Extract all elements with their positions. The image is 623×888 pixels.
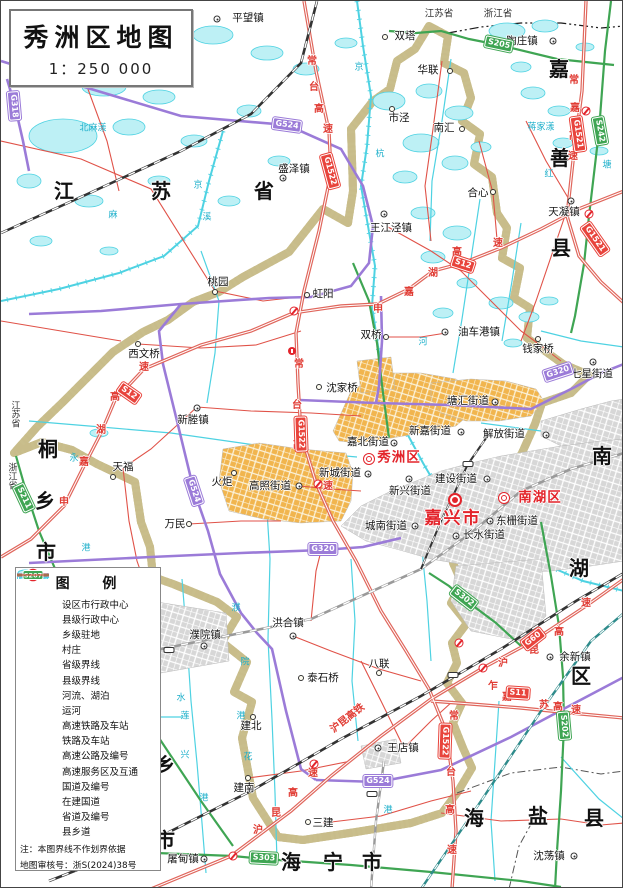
legend-note-2: 地图审核号：浙S(2024)38号 — [20, 858, 156, 871]
map-label-water: 麻 — [108, 212, 117, 221]
map-label-region: 乡 — [35, 491, 55, 511]
map-label-region: 南 — [592, 446, 612, 466]
map-label-region: 海 — [464, 808, 484, 828]
map-label-pv: 江苏省 — [10, 401, 19, 428]
map-label-rr: 湖 — [428, 269, 438, 279]
map-label-town: 七星街道 — [571, 369, 613, 380]
town-marker — [492, 399, 499, 406]
village-marker — [250, 714, 256, 720]
map-label-town: 王江泾镇 — [370, 223, 412, 234]
map-label-town: 新兴街道 — [389, 486, 431, 497]
village-marker — [135, 341, 141, 347]
map-label-rr: 常 — [294, 360, 304, 370]
town-marker — [201, 856, 208, 863]
legend-item: 县级界线 — [20, 672, 156, 687]
map-title-box: 秀洲区地图 1：250 000 — [9, 9, 193, 87]
map-label-town: 油车港镇 — [458, 327, 500, 338]
map-label-water: 兴 — [180, 752, 189, 761]
village-marker — [186, 521, 192, 527]
map-label-region: 江 — [54, 181, 74, 201]
inter-marker — [582, 107, 591, 116]
map-label-region: 市 — [36, 542, 56, 562]
map-label-town: 高照街道 — [249, 481, 291, 492]
map-label-town: 沈家桥 — [326, 383, 358, 394]
village-marker — [231, 470, 237, 476]
map-label-water: 蒋家漾 — [527, 124, 554, 133]
village-marker — [298, 675, 304, 681]
map-label-town: 新嘉街道 — [409, 426, 451, 437]
map-label-rr: 台 — [446, 768, 456, 778]
map-label-rr: 高 — [554, 628, 564, 638]
map-page: 平望镇双塔陶庄镇华联市泾南汇盛泽镇合心王江泾镇天凝镇桃园虹阳双桥油车港镇钱家桥西… — [0, 0, 623, 888]
legend-item: G60高速公路及编号 — [20, 748, 156, 763]
village-marker — [490, 189, 496, 195]
map-label-region: 市 — [362, 852, 382, 872]
town-marker — [391, 440, 398, 447]
town-marker — [214, 16, 221, 23]
legend-item-label: 县级行政中心 — [62, 612, 119, 626]
map-label-rr: 高 — [110, 393, 120, 403]
map-label-water: 花 — [243, 754, 252, 763]
map-label-rr: 台 — [309, 83, 319, 93]
legend-item-label: 国道及编号 — [62, 779, 110, 793]
legend-item-label: 县乡道 — [62, 824, 91, 838]
station-marker — [164, 647, 175, 653]
road-badge-g1522: G1522 — [294, 416, 307, 451]
town-marker — [290, 633, 297, 640]
map-label-town: 西文桥 — [128, 349, 160, 360]
map-label-water: 京 — [354, 64, 363, 73]
legend-item: G320国道及编号 — [20, 778, 156, 793]
map-label-region: 盐 — [528, 806, 548, 826]
map-label-town: 钱家桥 — [522, 344, 554, 355]
town-marker — [590, 359, 597, 366]
map-label-town: 泰石桥 — [307, 673, 339, 684]
map-label-water: 莲 — [180, 713, 189, 722]
legend-item-label: 设区市行政中心 — [62, 597, 129, 611]
legend-item-label: 铁路及车站 — [62, 733, 110, 747]
village-marker — [383, 334, 389, 340]
map-label-water: 永 — [69, 455, 78, 464]
town-marker — [571, 853, 578, 860]
map-label-rr: 速 — [447, 846, 457, 856]
inter-marker — [314, 480, 323, 489]
map-label-town: 天凝镇 — [548, 207, 580, 218]
map-label-rr: 高 — [314, 105, 324, 115]
road-badge-g318: G318 — [7, 91, 22, 121]
village-marker — [316, 384, 322, 390]
legend-item: 在建国道 — [20, 793, 156, 808]
map-label-town: 双塔 — [395, 31, 416, 42]
map-label-water: 溪 — [202, 214, 211, 223]
town-marker — [194, 405, 201, 412]
station-marker — [367, 791, 378, 797]
inter-marker — [455, 639, 464, 648]
road-badge-g524: G524 — [363, 775, 392, 787]
map-label-water: 濮 — [231, 605, 240, 614]
legend-item: 村庄 — [20, 642, 156, 657]
legend-item: 运河 — [20, 702, 156, 717]
village-marker — [304, 292, 310, 298]
town-marker — [406, 476, 413, 483]
village-marker — [382, 34, 388, 40]
map-label-rr: 申 — [59, 498, 69, 508]
town-marker — [412, 523, 419, 530]
map-label-town: 长水街道 — [463, 530, 505, 541]
village-marker — [305, 819, 311, 825]
legend-item-label: 村庄 — [62, 642, 81, 656]
map-label-town: 东栅街道 — [496, 516, 538, 527]
map-label-town: 市泾 — [389, 113, 410, 124]
map-label-town: 华联 — [418, 65, 439, 76]
map-label-town: 万民 — [165, 519, 186, 530]
inter-marker — [229, 852, 238, 861]
map-label-town: 双桥 — [361, 330, 382, 341]
map-label-town: 天福 — [113, 462, 134, 473]
map-label-region: 嘉 — [549, 59, 569, 79]
inter-marker — [290, 307, 299, 316]
town-marker — [280, 175, 287, 182]
town-marker — [442, 329, 449, 336]
map-label-rr: 常 — [449, 712, 459, 722]
road-badge-s303: S303 — [249, 851, 278, 864]
legend-item: 高速铁路及车站 — [20, 718, 156, 733]
map-label-town: 洪合镇 — [272, 618, 304, 629]
map-label-city: 嘉兴市 — [425, 511, 482, 528]
town-marker — [550, 38, 557, 45]
map-label-town: 濮院镇 — [189, 630, 221, 641]
map-label-region: 县 — [551, 238, 571, 258]
legend-item: 河流、湖泊 — [20, 687, 156, 702]
service-marker — [288, 347, 296, 355]
map-label-town: 嘉北街道 — [347, 437, 389, 448]
map-label-water: 水 — [176, 695, 185, 704]
map-label-rr: 沪 — [253, 826, 263, 836]
legend-item: 县乡道 — [20, 824, 156, 839]
map-label-town: 余新镇 — [559, 652, 591, 663]
legend-item: S207省道及编号 — [20, 809, 156, 824]
legend-item-label: 河流、湖泊 — [62, 688, 110, 702]
town-marker — [458, 429, 465, 436]
village-marker — [245, 775, 251, 781]
village-marker — [459, 126, 465, 132]
legend-item-label: 省级界线 — [62, 657, 100, 671]
map-label-rr: 速 — [323, 482, 333, 492]
map-label-water: 院 — [240, 659, 249, 668]
map-label-region: 海 — [281, 852, 301, 872]
village-marker — [376, 670, 382, 676]
road-badge-s11: S11 — [506, 686, 530, 700]
village-marker — [110, 474, 116, 480]
legend-item-label: 运河 — [62, 703, 81, 717]
map-label-rr: 速 — [568, 152, 578, 162]
legend-item-label: 高速公路及编号 — [62, 748, 129, 762]
map-scale: 1：250 000 — [11, 58, 191, 79]
map-label-town: 王店镇 — [387, 743, 419, 754]
map-label-water: 港 — [199, 795, 208, 804]
map-label-town: 城南街道 — [365, 521, 407, 532]
map-label-rr: 沪 — [498, 659, 508, 669]
map-label-town: 新城街道 — [319, 468, 361, 479]
road-badge-g1522: G1522 — [438, 723, 451, 758]
legend-item: 铁路及车站 — [20, 733, 156, 748]
map-label-water: 河 — [418, 339, 427, 348]
legend-item-label: 乡级驻地 — [62, 627, 100, 641]
town-marker — [296, 483, 303, 490]
legend-rows: 设区市行政中心县级行政中心乡级驻地村庄省级界线县级界线河流、湖泊运河高速铁路及车… — [20, 596, 156, 839]
map-label-town: 建设街道 — [435, 474, 477, 485]
map-label-town: 火炬 — [212, 477, 233, 488]
map-label-town: 塘汇街道 — [447, 396, 489, 407]
town-marker — [453, 533, 460, 540]
map-label-water: 京 — [193, 182, 202, 191]
map-label-rr: 常 — [569, 76, 579, 86]
map-label-town: 桃园 — [208, 277, 229, 288]
map-label-water: 港 — [236, 713, 245, 722]
map-label-region: 宁 — [323, 852, 343, 872]
legend-item: 省级界线 — [20, 657, 156, 672]
road-badge-g320: G320 — [308, 543, 337, 555]
village-marker — [447, 68, 453, 74]
town-marker — [375, 745, 382, 752]
map-label-district: 秀洲区 — [377, 451, 421, 465]
map-label-region: 桐 — [38, 439, 58, 459]
map-label-rr: 常 — [307, 57, 317, 67]
legend-item: 县级行政中心 — [20, 611, 156, 626]
station-marker — [448, 672, 459, 678]
town-marker — [365, 471, 372, 478]
legend-item-label: 在建国道 — [62, 794, 100, 808]
town-marker — [201, 643, 208, 650]
map-label-town: 建北 — [241, 721, 262, 732]
map-label-town: 南汇 — [434, 123, 455, 134]
map-label-rr: 速 — [581, 599, 591, 609]
county-marker — [498, 492, 510, 504]
town-marker — [568, 198, 575, 205]
map-label-town: 八联 — [369, 659, 390, 670]
map-label-rr: 台 — [292, 401, 302, 411]
map-label-town: 屠甸镇 — [167, 854, 199, 865]
map-label-town: 虹阳 — [313, 289, 334, 300]
village-marker — [212, 289, 218, 295]
town-marker — [484, 476, 491, 483]
county-marker — [363, 453, 375, 465]
town-marker — [487, 518, 494, 525]
map-label-rr: 速 — [493, 239, 503, 249]
map-label-town: 新塍镇 — [177, 415, 209, 426]
map-label-water: 北麻漾 — [79, 125, 106, 134]
map-label-region: 湖 — [569, 558, 589, 578]
map-label-region: 区 — [571, 666, 591, 686]
map-label-rr: 速 — [139, 363, 149, 373]
map-label-ph: 浙江省 — [484, 9, 513, 19]
inter-marker — [585, 210, 594, 219]
map-label-rr: 苏 — [539, 701, 549, 711]
map-label-rr: 速 — [308, 769, 318, 779]
map-label-water: 红 — [544, 171, 553, 180]
map-label-region: 省 — [254, 181, 274, 201]
legend-item-label: 县级界线 — [62, 673, 100, 687]
inter-marker — [479, 664, 488, 673]
legend-box: 图 例 设区市行政中心县级行政中心乡级驻地村庄省级界线县级界线河流、湖泊运河高速… — [15, 567, 161, 871]
map-label-region: 县 — [584, 808, 604, 828]
village-marker — [389, 106, 395, 112]
road-badge-s202: S202 — [557, 711, 571, 740]
map-title: 秀洲区地图 — [11, 18, 191, 54]
map-label-region: 苏 — [151, 181, 171, 201]
station-marker — [463, 461, 474, 467]
legend-note-1: 注：本图界线不作划界依据 — [20, 842, 156, 855]
inter-marker — [310, 760, 319, 769]
map-label-rr: 嘉 — [570, 104, 580, 114]
legend-item: 设区市行政中心 — [20, 596, 156, 611]
map-label-town: 平望镇 — [232, 13, 264, 24]
map-label-district: 南湖区 — [518, 491, 562, 505]
map-label-rr: 申 — [373, 305, 383, 315]
map-label-rr: 速 — [571, 706, 581, 716]
map-label-rr: 高 — [288, 789, 298, 799]
map-label-rr: 昆 — [271, 809, 281, 819]
map-label-water: 塘 — [602, 162, 611, 171]
map-label-town: 合心 — [468, 188, 489, 199]
legend-item: 乡级驻地 — [20, 626, 156, 641]
map-label-rr: 乍 — [488, 682, 498, 692]
legend-item: 高速服务区及互通 — [20, 763, 156, 778]
legend-item-label: 高速铁路及车站 — [62, 718, 129, 732]
map-label-town: 解放街道 — [483, 429, 525, 440]
map-label-town: 盛泽镇 — [278, 164, 310, 175]
legend-item-label: 省道及编号 — [62, 809, 110, 823]
town-marker — [381, 211, 388, 218]
map-label-rr: 高 — [445, 806, 455, 816]
map-label-rr: 嘉 — [79, 458, 89, 468]
legend-item-label: 高速服务区及互通 — [62, 764, 138, 778]
map-label-town: 建南 — [234, 783, 255, 794]
map-label-water: 杭 — [375, 151, 384, 160]
town-marker — [547, 654, 554, 661]
village-marker — [535, 336, 541, 342]
city-marker — [448, 493, 462, 507]
map-label-ph: 江苏省 — [425, 9, 454, 19]
map-label-water: 港 — [81, 545, 90, 554]
map-label-rr: 速 — [323, 125, 333, 135]
map-label-rr: 嘉 — [404, 288, 414, 298]
map-label-rr: 湖 — [96, 426, 106, 436]
map-label-region: 善 — [550, 148, 570, 168]
map-label-town: 三建 — [313, 818, 334, 829]
map-label-water: 港 — [383, 807, 392, 816]
town-marker — [543, 432, 550, 439]
map-label-town: 沈荡镇 — [533, 851, 565, 862]
